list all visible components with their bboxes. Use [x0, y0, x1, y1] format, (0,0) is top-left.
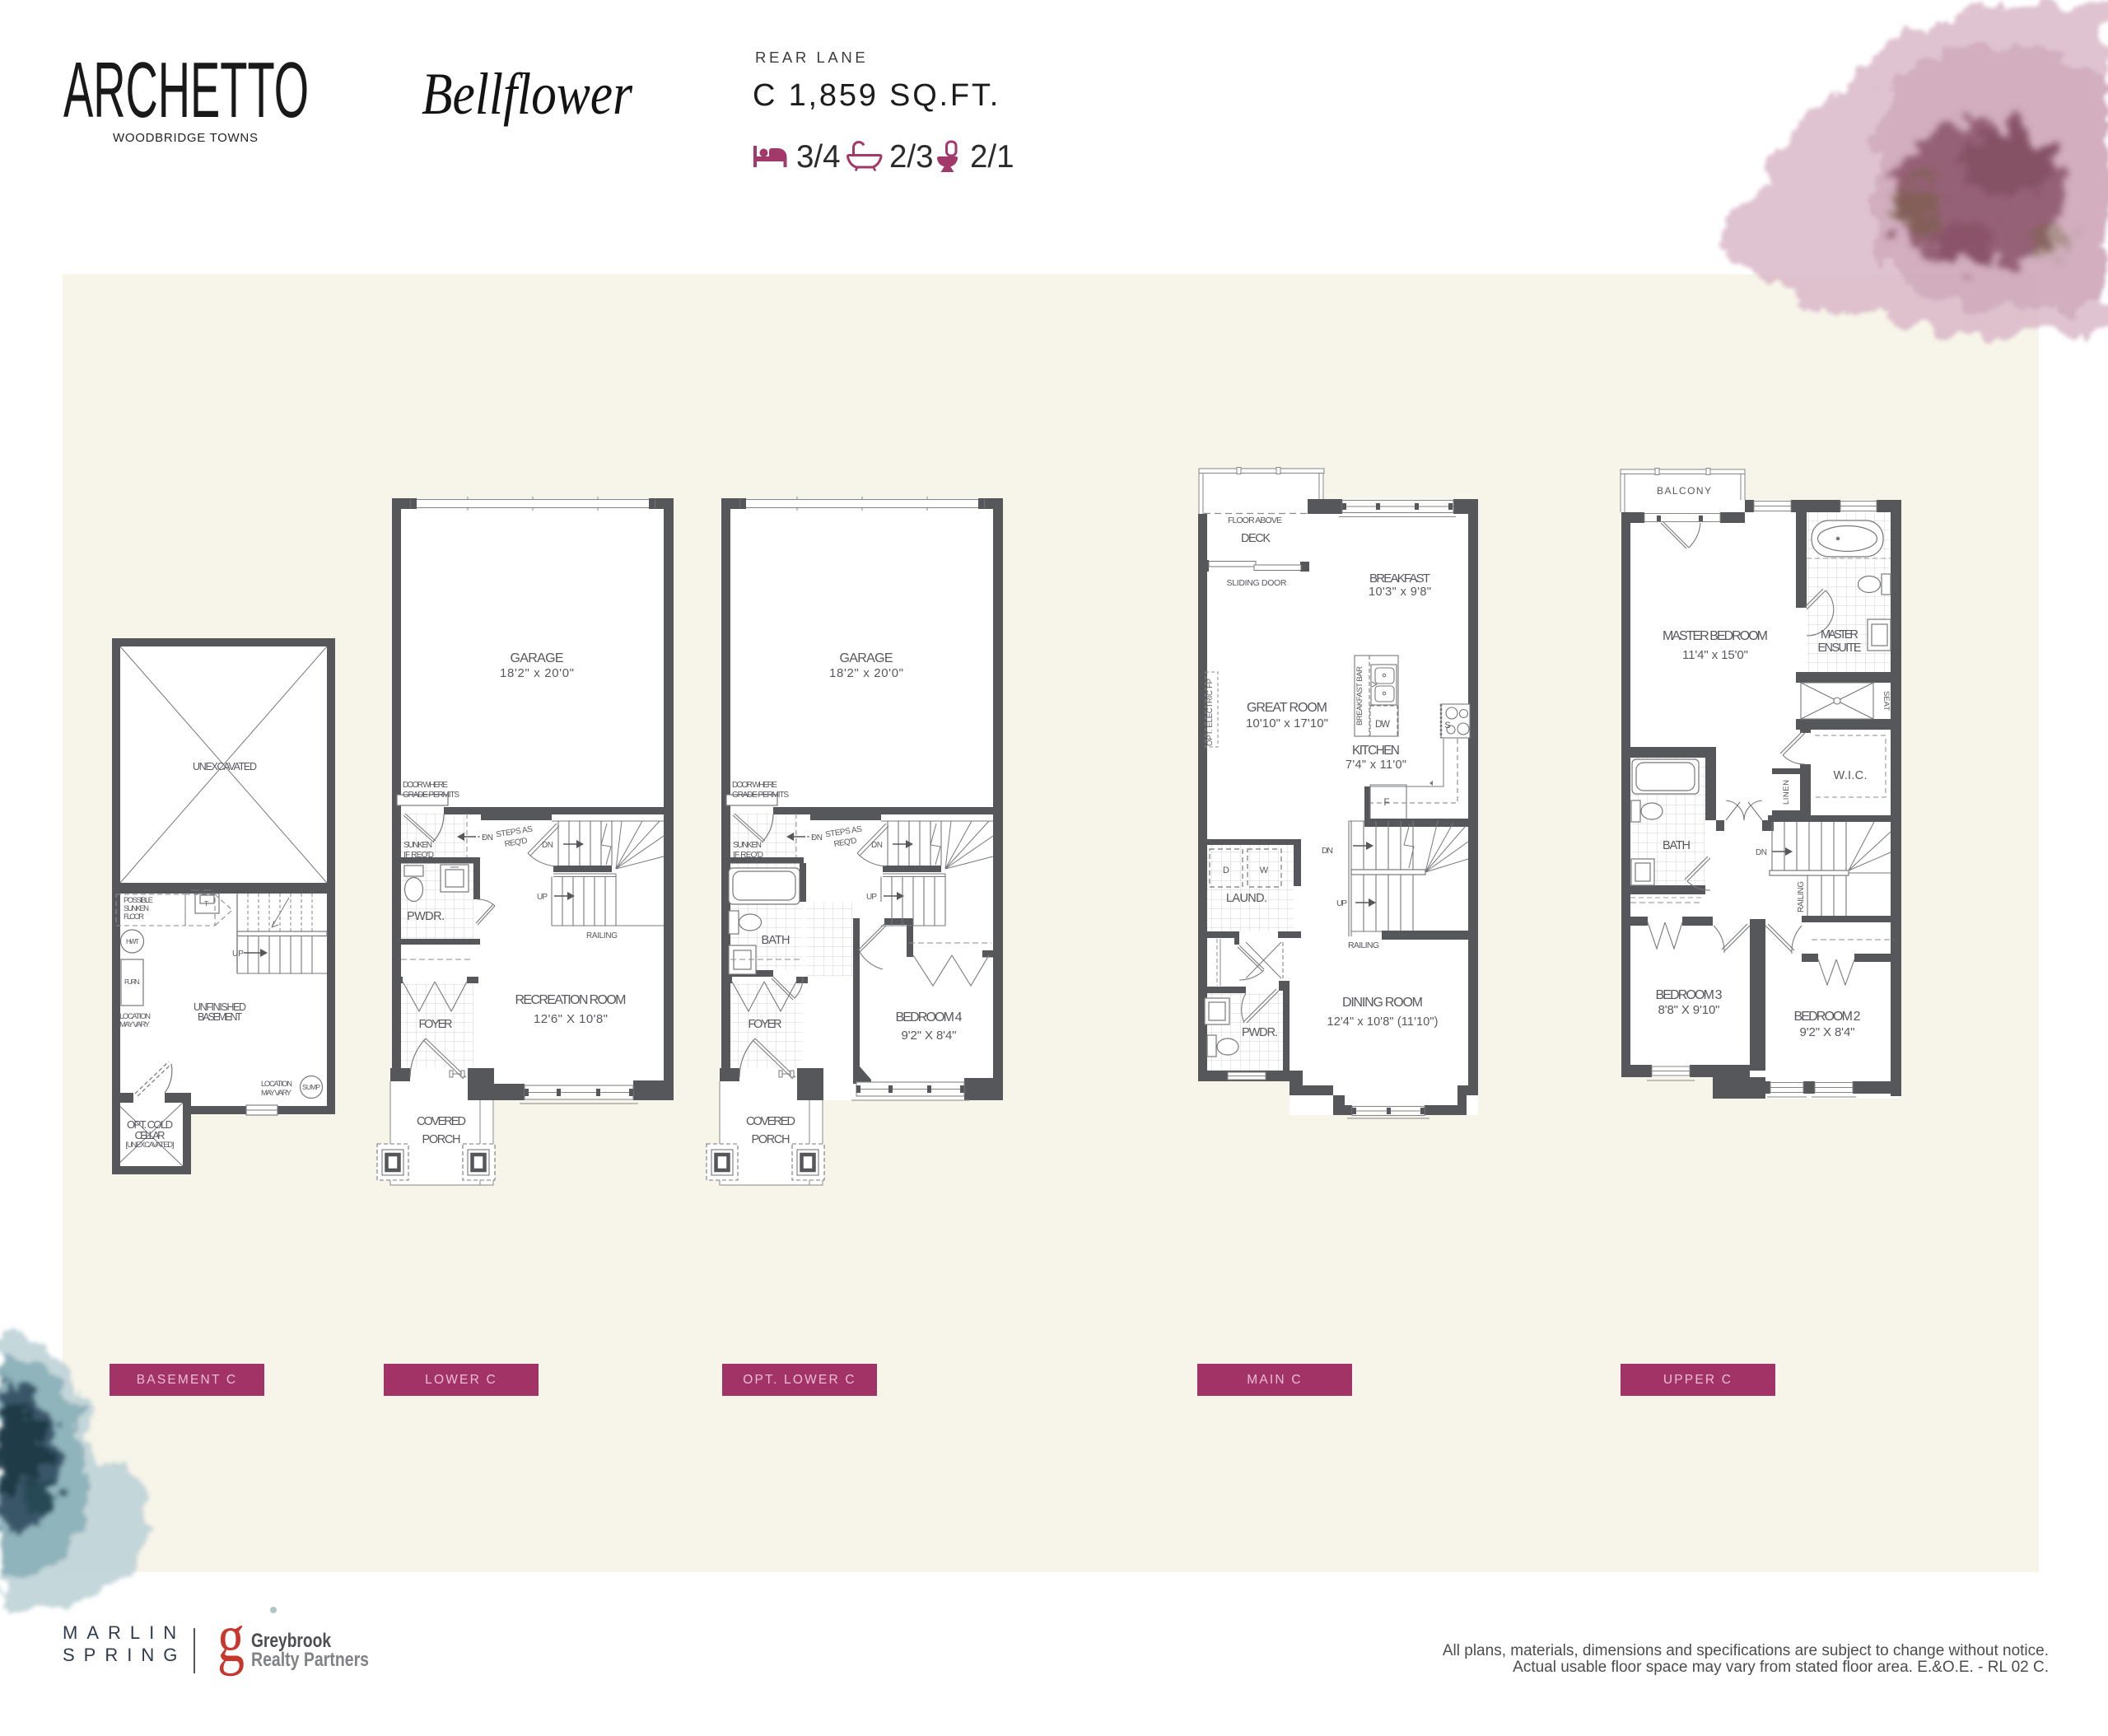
svg-text:BEDROOM 2: BEDROOM 2 — [1794, 1010, 1861, 1024]
svg-text:2/3: 2/3 — [889, 139, 934, 175]
svg-text:COVERED: COVERED — [417, 1115, 466, 1128]
svg-text:UP: UP — [1336, 898, 1347, 908]
svg-text:LINEN: LINEN — [1782, 780, 1791, 805]
svg-text:DN: DN — [482, 833, 493, 842]
svg-text:DECK: DECK — [1241, 532, 1271, 545]
svg-text:SUMP: SUMP — [302, 1083, 320, 1091]
svg-text:RECREATION ROOM: RECREATION ROOM — [515, 993, 627, 1007]
svg-text:2/1: 2/1 — [970, 139, 1014, 175]
svg-text:9'2" X 8'4": 9'2" X 8'4" — [1800, 1025, 1855, 1039]
svg-text:SLIDING DOOR: SLIDING DOOR — [1227, 578, 1287, 588]
svg-text:BEDROOM 4: BEDROOM 4 — [896, 1010, 963, 1024]
svg-text:D: D — [1223, 866, 1229, 875]
svg-text:UNEXCAVATED: UNEXCAVATED — [193, 761, 257, 772]
svg-text:RAILING: RAILING — [1348, 940, 1379, 950]
svg-text:WOODBRIDGE TOWNS: WOODBRIDGE TOWNS — [113, 131, 258, 145]
svg-text:DOOR WHERE: DOOR WHERE — [732, 781, 777, 790]
svg-text:12'6" X 10'8": 12'6" X 10'8" — [534, 1012, 608, 1026]
svg-text:BATH: BATH — [1663, 839, 1691, 852]
svg-text:W.I.C.: W.I.C. — [1834, 769, 1868, 782]
svg-text:ARCHETTO: ARCHETTO — [63, 49, 309, 134]
svg-text:SUNKEN: SUNKEN — [733, 841, 762, 850]
svg-text:CELLAR: CELLAR — [135, 1129, 166, 1141]
svg-text:RAILING: RAILING — [1797, 881, 1806, 912]
svg-text:Realty Partners: Realty Partners — [251, 1649, 369, 1671]
svg-text:S: S — [1444, 721, 1450, 730]
svg-text:10'10" x 17'10": 10'10" x 17'10" — [1246, 716, 1328, 730]
svg-text:W: W — [1260, 866, 1269, 875]
svg-text:MASTER: MASTER — [1821, 628, 1858, 642]
svg-text:SEAT: SEAT — [1882, 691, 1891, 711]
svg-text:MAY VARY: MAY VARY — [261, 1089, 292, 1098]
svg-text:11'4" x 15'0": 11'4" x 15'0" — [1682, 648, 1748, 662]
svg-text:HWT: HWT — [126, 937, 139, 945]
svg-text:IF REQ'D: IF REQ'D — [403, 851, 434, 860]
svg-text:PORCH: PORCH — [422, 1133, 461, 1146]
svg-text:FLOOR: FLOOR — [124, 912, 144, 922]
svg-text:GREAT ROOM: GREAT ROOM — [1247, 701, 1327, 715]
svg-text:UP: UP — [866, 893, 877, 902]
svg-text:BALCONY: BALCONY — [1657, 485, 1711, 497]
svg-text:Bellflower: Bellflower — [422, 61, 633, 127]
svg-text:LAUND.: LAUND. — [1226, 892, 1267, 905]
svg-text:PORCH: PORCH — [752, 1133, 790, 1146]
svg-text:GRADE PERMITS: GRADE PERMITS — [732, 791, 789, 800]
svg-text:GRADE PERMITS: GRADE PERMITS — [403, 791, 459, 800]
svg-text:18'2" x 20'0": 18'2" x 20'0" — [829, 666, 903, 680]
svg-text:FOYER: FOYER — [419, 1018, 453, 1031]
svg-text:KITCHEN: KITCHEN — [1352, 744, 1400, 758]
svg-text:10'3" x 9'8": 10'3" x 9'8" — [1369, 586, 1431, 599]
svg-text:DN: DN — [542, 841, 553, 850]
svg-text:UP: UP — [537, 893, 548, 902]
svg-text:DINING ROOM: DINING ROOM — [1342, 996, 1423, 1010]
svg-text:8'8" X 9'10": 8'8" X 9'10" — [1658, 1003, 1720, 1017]
svg-text:BATH: BATH — [762, 934, 790, 947]
svg-text:g: g — [217, 1614, 245, 1677]
svg-text:LOCATION: LOCATION — [261, 1080, 292, 1089]
svg-text:ENSUITE: ENSUITE — [1818, 642, 1862, 655]
svg-text:DN: DN — [871, 841, 883, 850]
svg-text:DN: DN — [1756, 848, 1767, 857]
svg-text:3/4: 3/4 — [796, 139, 841, 175]
svg-text:MASTER BEDROOM: MASTER BEDROOM — [1663, 629, 1768, 643]
svg-text:BREAKFAST: BREAKFAST — [1369, 572, 1430, 586]
svg-text:FURN.: FURN. — [124, 978, 140, 986]
svg-text:UP: UP — [232, 950, 244, 959]
svg-text:DN: DN — [1322, 846, 1333, 856]
svg-text:PWDR.: PWDR. — [407, 910, 445, 923]
svg-text:DN: DN — [811, 833, 823, 842]
svg-text:BREAKFAST BAR: BREAKFAST BAR — [1355, 666, 1364, 726]
svg-text:FOYER: FOYER — [749, 1018, 782, 1031]
svg-text:GARAGE: GARAGE — [511, 651, 564, 665]
svg-text:GARAGE: GARAGE — [840, 651, 893, 665]
svg-text:18'2" x 20'0": 18'2" x 20'0" — [500, 666, 574, 680]
svg-text:DW: DW — [1375, 720, 1390, 730]
svg-text:F: F — [1383, 796, 1389, 808]
svg-text:OPT. ELECTRIC FP: OPT. ELECTRIC FP — [1206, 679, 1215, 746]
svg-text:9'2" X 8'4": 9'2" X 8'4" — [902, 1029, 957, 1043]
svg-text:7'4" x 11'0": 7'4" x 11'0" — [1345, 758, 1406, 772]
svg-text:BEDROOM 3: BEDROOM 3 — [1656, 988, 1723, 1002]
svg-text:T: T — [204, 899, 208, 908]
svg-text:MAY VARY: MAY VARY — [119, 1020, 151, 1029]
svg-text:DOOR WHERE: DOOR WHERE — [403, 781, 448, 790]
svg-text:IF REQ'D: IF REQ'D — [733, 851, 763, 860]
svg-text:BASEMENT: BASEMENT — [198, 1011, 242, 1023]
svg-text:FLOOR ABOVE: FLOOR ABOVE — [1228, 516, 1282, 525]
svg-text:PWDR.: PWDR. — [1242, 1026, 1278, 1039]
svg-text:SUNKEN: SUNKEN — [403, 841, 432, 850]
svg-text:COVERED: COVERED — [746, 1115, 795, 1128]
svg-text:12'4" x 10'8" (11'10"): 12'4" x 10'8" (11'10") — [1327, 1015, 1439, 1029]
svg-text:[UNEXCAVATED]: [UNEXCAVATED] — [126, 1141, 175, 1150]
svg-text:RAILING: RAILING — [586, 931, 618, 940]
